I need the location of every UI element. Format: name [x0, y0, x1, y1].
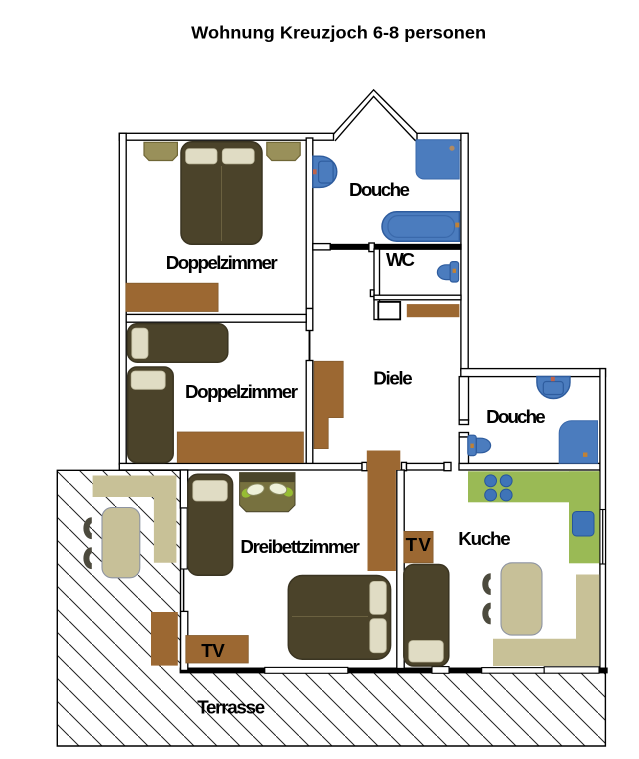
svg-text:Douche: Douche [486, 406, 546, 427]
svg-text:Doppelzimmer: Doppelzimmer [166, 252, 279, 273]
svg-text:Diele: Diele [373, 368, 413, 389]
svg-text:TV: TV [406, 534, 432, 555]
svg-text:Terrasse: Terrasse [197, 696, 265, 717]
svg-text:Doppelzimmer: Doppelzimmer [185, 381, 299, 402]
svg-text:Wohnung Kreuzjoch 6-8 personen: Wohnung Kreuzjoch 6-8 personen [191, 23, 486, 43]
svg-text:Douche: Douche [349, 179, 410, 200]
svg-text:Kuche: Kuche [458, 528, 511, 549]
svg-text:WC: WC [386, 249, 415, 270]
svg-text:Dreibettzimmer: Dreibettzimmer [240, 536, 360, 557]
svg-text:TV: TV [201, 640, 225, 661]
